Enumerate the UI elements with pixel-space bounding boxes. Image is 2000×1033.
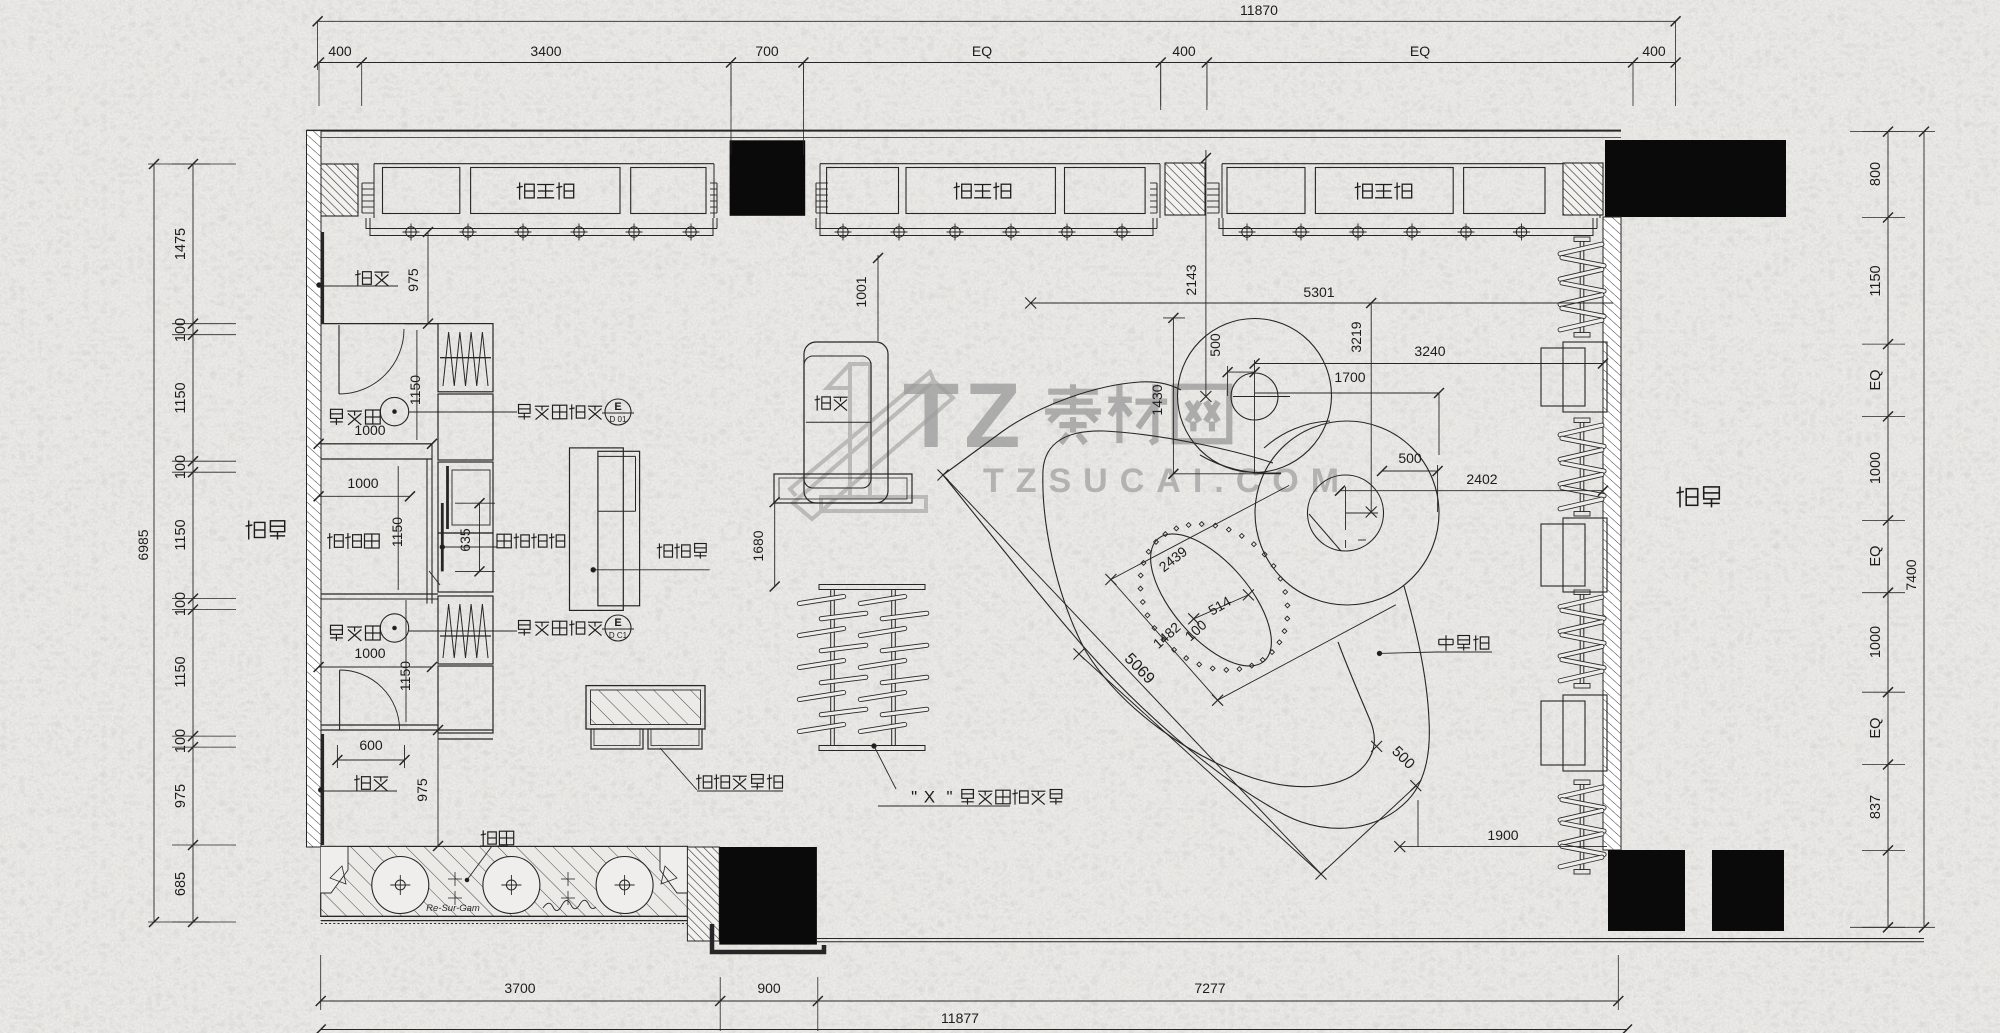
- svg-text:1150: 1150: [173, 519, 189, 550]
- svg-text:600: 600: [359, 737, 383, 753]
- svg-text:11870: 11870: [1240, 2, 1278, 18]
- svg-text:3700: 3700: [504, 980, 535, 996]
- svg-text:": ": [947, 788, 953, 807]
- svg-text:X: X: [924, 788, 935, 807]
- svg-text:500: 500: [1207, 333, 1223, 357]
- svg-text:1000: 1000: [347, 475, 378, 491]
- svg-text:1900: 1900: [1487, 827, 1518, 843]
- svg-text:100: 100: [173, 729, 189, 753]
- svg-text:1150: 1150: [173, 656, 189, 687]
- svg-text:2402: 2402: [1466, 471, 1497, 487]
- svg-text:1150: 1150: [397, 661, 413, 691]
- svg-text:1001: 1001: [853, 276, 869, 307]
- svg-text:1000: 1000: [1868, 626, 1884, 658]
- svg-text:800: 800: [1868, 162, 1884, 186]
- svg-text:685: 685: [173, 872, 189, 896]
- svg-text:837: 837: [1868, 795, 1884, 819]
- svg-text:3240: 3240: [1414, 343, 1445, 359]
- svg-text:2143: 2143: [1183, 264, 1199, 295]
- svg-text:7400: 7400: [1903, 559, 1919, 590]
- svg-text:1430: 1430: [1149, 384, 1165, 415]
- svg-text:975: 975: [173, 784, 189, 808]
- svg-text:EQ: EQ: [1868, 370, 1884, 391]
- svg-text:1475: 1475: [173, 228, 189, 260]
- svg-text:D 01: D 01: [610, 415, 627, 424]
- svg-text:D C1: D C1: [609, 631, 628, 640]
- svg-text:5301: 5301: [1303, 284, 1334, 300]
- svg-text:400: 400: [1172, 43, 1196, 59]
- svg-text:11877: 11877: [941, 1010, 979, 1026]
- svg-text:7277: 7277: [1194, 980, 1225, 996]
- svg-text:EQ: EQ: [1410, 43, 1430, 59]
- svg-text:EQ: EQ: [1868, 546, 1884, 567]
- svg-text:E: E: [614, 401, 621, 413]
- svg-text:": ": [911, 788, 917, 807]
- svg-text:700: 700: [755, 43, 779, 59]
- svg-text:1000: 1000: [354, 645, 385, 661]
- svg-text:3400: 3400: [530, 43, 561, 59]
- svg-text:400: 400: [328, 43, 352, 59]
- svg-text:Re-Sur-Gam: Re-Sur-Gam: [426, 903, 480, 914]
- svg-text:3219: 3219: [1348, 321, 1364, 352]
- svg-text:1680: 1680: [750, 530, 766, 561]
- svg-text:1150: 1150: [1868, 265, 1884, 296]
- svg-text:1000: 1000: [1868, 452, 1884, 484]
- svg-text:TZSUCAI.COM: TZSUCAI.COM: [983, 462, 1351, 500]
- svg-text:100: 100: [173, 455, 189, 479]
- svg-text:1150: 1150: [407, 375, 423, 405]
- svg-text:EQ: EQ: [972, 43, 992, 59]
- svg-text:100: 100: [173, 592, 189, 616]
- svg-text:E: E: [614, 617, 621, 629]
- svg-text:1700: 1700: [1334, 369, 1365, 385]
- svg-text:975: 975: [414, 778, 430, 802]
- svg-text:TZ: TZ: [903, 365, 1025, 467]
- svg-text:100: 100: [173, 318, 189, 342]
- svg-text:6985: 6985: [135, 529, 151, 560]
- svg-text:400: 400: [1642, 43, 1666, 59]
- svg-text:EQ: EQ: [1868, 718, 1884, 739]
- svg-text:975: 975: [405, 268, 421, 292]
- svg-text:900: 900: [757, 980, 781, 996]
- svg-text:500: 500: [1398, 450, 1422, 466]
- svg-text:1150: 1150: [173, 382, 189, 413]
- svg-text:635: 635: [457, 528, 473, 552]
- svg-text:1150: 1150: [389, 517, 405, 547]
